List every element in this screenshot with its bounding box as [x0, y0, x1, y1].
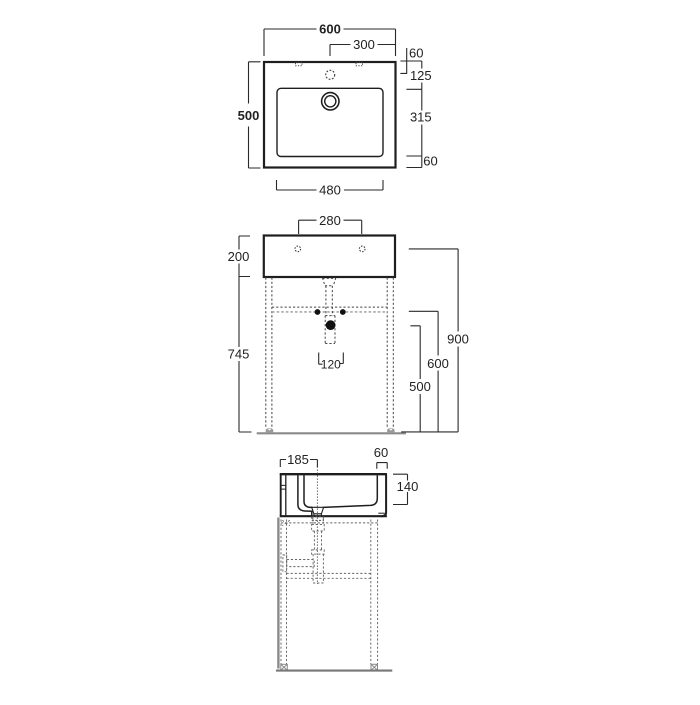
svg-text:125: 125 [410, 68, 432, 83]
svg-text:745: 745 [228, 347, 250, 362]
svg-text:200: 200 [228, 249, 250, 264]
svg-text:60: 60 [409, 46, 423, 61]
svg-text:500: 500 [409, 379, 431, 394]
svg-text:600: 600 [319, 22, 341, 37]
svg-text:315: 315 [410, 110, 432, 125]
svg-text:60: 60 [374, 445, 388, 460]
svg-text:500: 500 [238, 108, 260, 123]
svg-text:300: 300 [353, 37, 375, 52]
svg-text:480: 480 [319, 183, 341, 198]
svg-text:60: 60 [423, 154, 437, 169]
svg-text:280: 280 [319, 213, 341, 228]
svg-text:185: 185 [287, 452, 309, 467]
svg-text:120: 120 [321, 358, 341, 372]
svg-text:140: 140 [397, 479, 419, 494]
svg-text:900: 900 [447, 332, 469, 347]
svg-text:600: 600 [427, 356, 449, 371]
